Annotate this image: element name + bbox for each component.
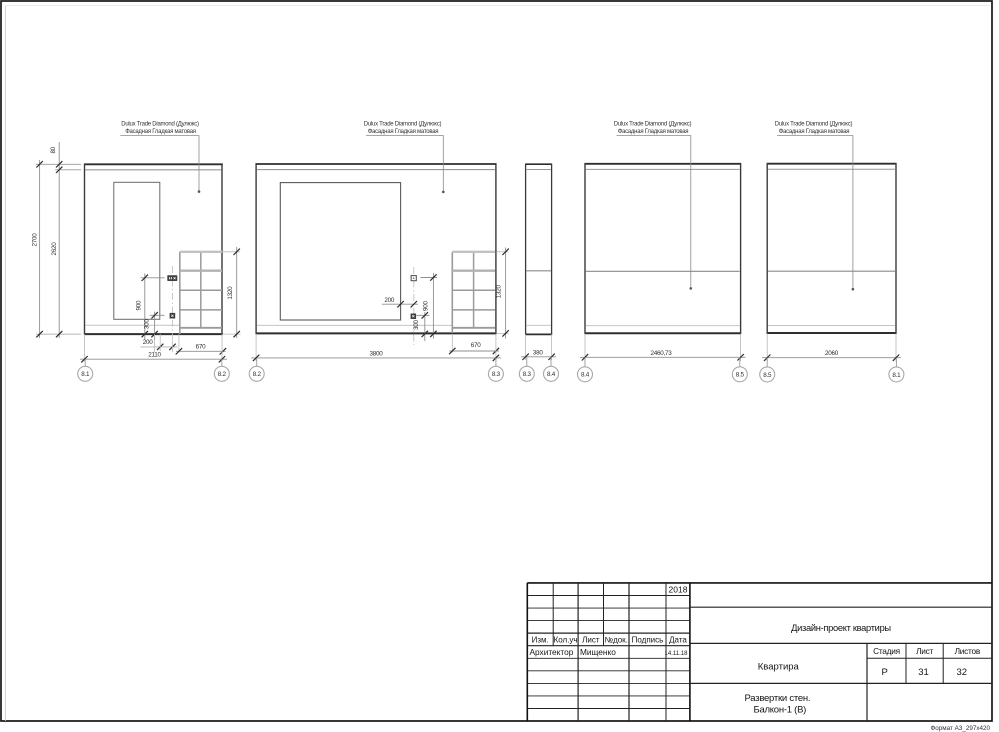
svg-text:32: 32 [957,667,968,678]
svg-text:2060: 2060 [825,350,839,357]
svg-text:Лист: Лист [916,646,933,656]
svg-text:8.2: 8.2 [218,371,227,378]
svg-text:Dulux Trade Diamond (Дулюкс): Dulux Trade Diamond (Дулюкс) [614,122,692,128]
svg-text:2110: 2110 [148,352,161,359]
svg-text:Листов: Листов [955,646,981,656]
svg-text:300: 300 [144,319,151,330]
svg-text:8.3: 8.3 [492,371,501,378]
svg-text:8.4: 8.4 [581,372,590,379]
svg-text:№док.: №док. [604,635,627,644]
svg-text:2460,73: 2460,73 [650,350,672,357]
svg-text:Дизайн-проект квартиры: Дизайн-проект квартиры [791,623,891,633]
svg-text:Подпись: Подпись [632,635,664,644]
svg-text:14.11.18: 14.11.18 [665,651,689,657]
svg-text:8.3: 8.3 [523,371,532,378]
svg-text:Стадия: Стадия [873,646,900,656]
svg-text:80: 80 [50,146,57,153]
svg-text:Мищенко: Мищенко [580,647,616,657]
svg-text:Балкон-1 (В): Балкон-1 (В) [753,705,806,716]
svg-text:Фасадная Гладкая матовая: Фасадная Гладкая матовая [368,129,439,135]
svg-text:Квартира: Квартира [758,662,800,673]
svg-text:8.5: 8.5 [763,372,772,379]
svg-text:Изм.: Изм. [532,635,549,644]
svg-text:Дата: Дата [669,635,687,644]
svg-text:Развертки стен.: Развертки стен. [745,693,811,704]
svg-text:2018: 2018 [669,585,688,595]
svg-text:3800: 3800 [369,350,383,357]
svg-text:380: 380 [533,349,544,356]
svg-text:Dulux Trade Diamond (Дулюкс): Dulux Trade Diamond (Дулюкс) [364,122,442,128]
svg-text:900: 900 [136,300,143,311]
svg-text:Формат А3_297х420: Формат А3_297х420 [931,725,991,732]
svg-text:900: 900 [423,300,430,311]
svg-text:300: 300 [413,319,420,330]
svg-text:Архитектор: Архитектор [530,647,574,657]
svg-text:Р: Р [882,667,888,678]
svg-text:Фасадная Гладкая матовая: Фасадная Гладкая матовая [618,129,689,135]
svg-text:2620: 2620 [51,242,58,256]
svg-text:8.5: 8.5 [736,372,745,379]
svg-text:200: 200 [384,297,395,304]
svg-text:8.1: 8.1 [81,371,90,378]
svg-text:Фасадная Гладкая матовая: Фасадная Гладкая матовая [125,129,196,135]
svg-text:670: 670 [196,344,207,351]
svg-text:8.4: 8.4 [547,371,556,378]
svg-text:Dulux Trade Diamond (Дулюкс): Dulux Trade Diamond (Дулюкс) [121,122,199,128]
svg-text:8.1: 8.1 [892,372,901,379]
svg-text:31: 31 [918,667,929,678]
svg-text:Лист: Лист [582,635,600,644]
svg-text:Кол.уч: Кол.уч [554,635,578,644]
svg-text:670: 670 [471,342,482,349]
svg-text:Фасадная Гладкая матовая: Фасадная Гладкая матовая [779,129,850,135]
svg-text:1320: 1320 [496,285,503,299]
svg-text:Dulux Trade Diamond (Дулюкс): Dulux Trade Diamond (Дулюкс) [775,122,853,128]
svg-text:1320: 1320 [227,286,234,300]
svg-text:2700: 2700 [32,233,39,247]
svg-text:200: 200 [143,339,154,346]
svg-text:8.2: 8.2 [253,371,262,378]
